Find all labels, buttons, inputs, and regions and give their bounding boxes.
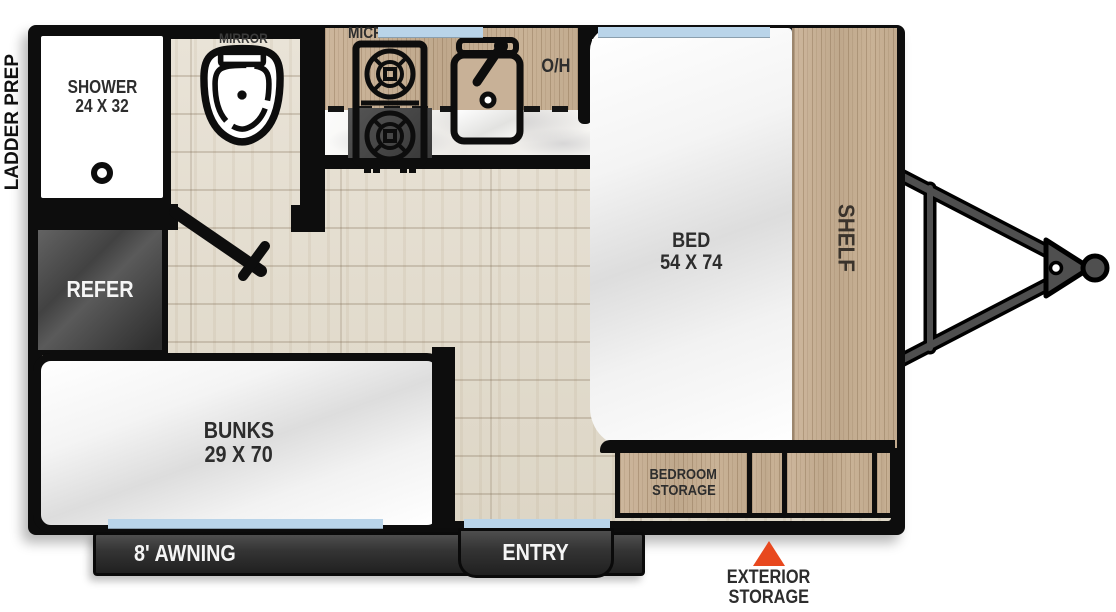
exterior-storage-label: EXTERIOR STORAGE	[684, 568, 854, 608]
mirror-label: MIRROR	[178, 31, 308, 46]
storage-compartment-small	[747, 448, 787, 518]
bed-name-text: BED	[672, 230, 710, 252]
bunks-size-text: 29 X 70	[205, 443, 273, 467]
two-burner-cooktop-icon	[350, 40, 430, 175]
bunks-name-text: BUNKS	[204, 419, 274, 443]
refer-text: REFER	[66, 278, 133, 302]
sink-with-faucet-icon	[448, 33, 528, 148]
bunks: BUNKS 29 X 70	[33, 353, 445, 533]
shower-pan: SHOWER 24 X 32	[41, 36, 163, 198]
ladder-prep-text: LADDER PREP	[3, 54, 23, 190]
bunks-label: BUNKS 29 X 70	[198, 419, 280, 467]
exterior-storage-text1: EXTERIOR	[727, 568, 811, 588]
storage-compartment-sliver	[872, 448, 895, 518]
shower-name-text: SHOWER	[67, 78, 137, 97]
toilet-icon	[188, 43, 296, 147]
trailer-tongue-hitch-icon	[896, 146, 1111, 391]
refrigerator-face: REFER	[38, 230, 162, 350]
shelf: SHELF	[792, 28, 897, 448]
bunks-right-wall	[432, 347, 455, 535]
bedroom-storage-label: BEDROOM STORAGE	[644, 467, 722, 498]
window-marker-bed	[598, 27, 770, 38]
entry-door-swing-icon	[165, 200, 285, 300]
bathroom-wall-jamb	[291, 205, 303, 232]
overhead-cabinet-label: O/H	[526, 57, 586, 77]
awning-text: 8' AWNING	[134, 542, 236, 566]
mirror-text: MIRROR	[219, 31, 268, 46]
exterior-storage-text2: STORAGE	[729, 588, 810, 608]
bathroom-right-wall	[300, 25, 325, 232]
overhead-text: O/H	[541, 57, 570, 77]
shower-drain-icon	[91, 162, 113, 184]
shelf-text: SHELF	[834, 204, 858, 272]
window-marker-kitchen	[378, 27, 483, 38]
bed-label: BED 54 X 74	[590, 230, 792, 274]
bedroom-storage-text2: STORAGE	[652, 483, 716, 499]
entry-text: ENTRY	[503, 541, 569, 565]
refrigerator: REFER	[33, 225, 168, 355]
entry-tab: ENTRY	[458, 528, 614, 578]
floorplan-canvas: LADDER PREP	[0, 0, 1116, 612]
bed-size-text: 54 X 74	[660, 252, 722, 274]
shower-size-text: 24 X 32	[75, 97, 128, 116]
exterior-storage-marker-icon	[753, 541, 785, 566]
storage-compartment-wide	[782, 448, 877, 518]
bedroom-storage: BEDROOM STORAGE	[615, 448, 752, 518]
window-marker-bunks	[108, 519, 383, 529]
bedroom-storage-text1: BEDROOM	[650, 467, 717, 483]
ladder-prep-label: LADDER PREP	[0, 25, 26, 220]
shower-label: SHOWER 24 X 32	[41, 78, 163, 115]
shower-enclosure: SHOWER 24 X 32	[33, 28, 171, 206]
trailer-body-walls: MICROWAVE O/H BED 54 X 74 SHELF BEDROOM …	[28, 25, 905, 535]
